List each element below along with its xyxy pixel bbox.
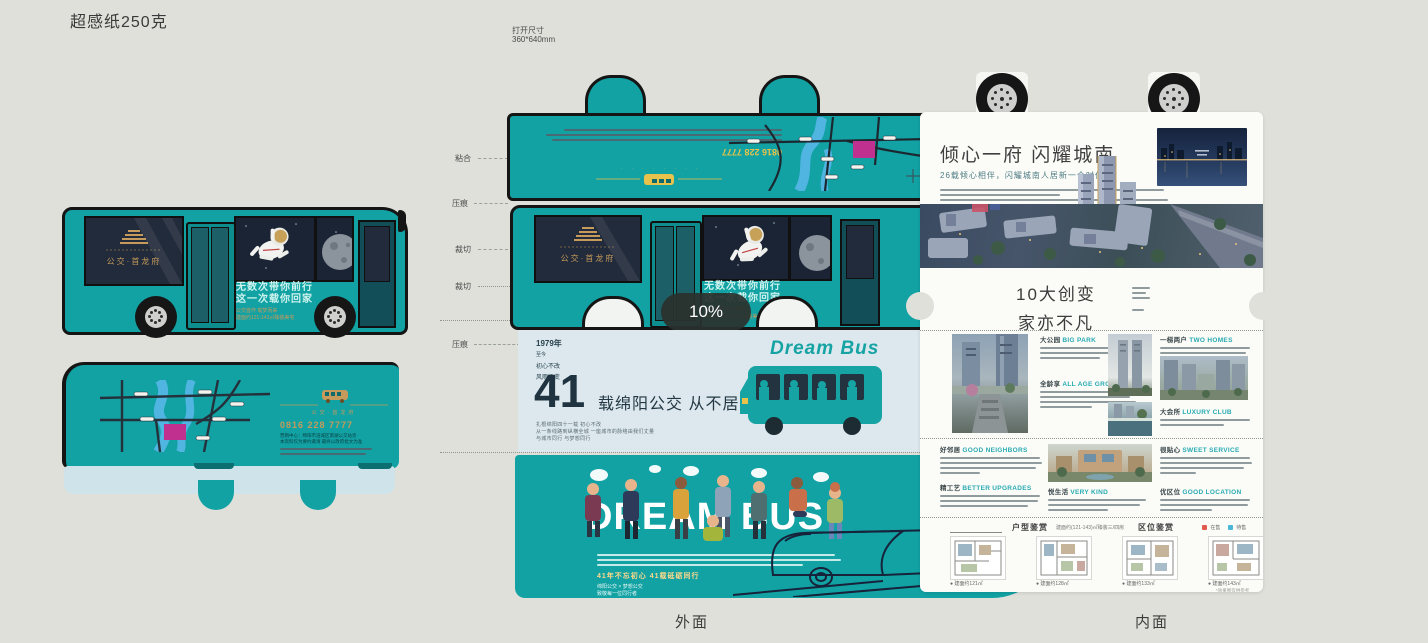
grid-item-g9: 优区位GOOD LOCATION bbox=[1160, 486, 1256, 514]
zoom-indicator-value: 10% bbox=[689, 302, 723, 322]
bus-slogan-line1: 无数次带你前行 bbox=[236, 282, 313, 294]
bus-wheel-front bbox=[314, 296, 356, 338]
bus-ad-window: 公交·首龙府 bbox=[84, 216, 184, 286]
floorplan-section: 户型鉴赏 建面约(121-143)㎡臻装三/四房 区位鉴赏 在售 待售 bbox=[920, 518, 1263, 592]
legend-label-2: 待售 bbox=[1236, 525, 1246, 531]
bus-wheel-rear bbox=[135, 296, 177, 338]
open-size-label: 打开尺寸 360*640mm bbox=[512, 26, 555, 44]
plan-legend: 在售 待售 bbox=[1202, 524, 1246, 531]
bus-astronaut-window bbox=[234, 216, 354, 282]
bus-window-logo: 公交·首龙府 bbox=[86, 256, 182, 267]
roof-contact-block: 公交·首龙府 0816 228 7777 营销中心：绵阳市涪城区南湖公交站旁 本… bbox=[280, 388, 388, 448]
dream-bus-illustration bbox=[740, 358, 890, 442]
astronaut-icon bbox=[244, 224, 295, 267]
sheet-notch-right bbox=[1249, 292, 1277, 320]
skyline-photo bbox=[1157, 128, 1247, 186]
entrance-render bbox=[952, 334, 1028, 433]
design-proof-canvas: 超感纸250克 打开尺寸 360*640mm 公交·首龙府 bbox=[0, 0, 1428, 643]
dream-bus-wordmark: Dream Bus bbox=[770, 338, 879, 360]
grid-band-2: 好邻居GOOD NEIGHBORS 精工艺BETTER UPGRADES bbox=[920, 442, 1263, 516]
sec2-side-note bbox=[1132, 284, 1162, 314]
plan-disclaimer: *效果图仅供参考 bbox=[1216, 588, 1249, 592]
bus-slogan-line2: 这一次载你回家 bbox=[236, 294, 313, 306]
moon-icon-2 bbox=[799, 235, 830, 271]
astronaut-icon-2 bbox=[720, 221, 774, 272]
outer-window-logo: 公交·首龙府 bbox=[536, 253, 640, 264]
twin-tower-render bbox=[1108, 334, 1152, 396]
moon-icon bbox=[322, 234, 352, 270]
sec2-heading: 10大创变 家亦不凡 bbox=[1016, 280, 1096, 334]
grid-item-g6: 精工艺BETTER UPGRADES bbox=[940, 482, 1046, 510]
floorplan-note: 建面约(121-143)㎡臻装三/四房 bbox=[1056, 524, 1124, 531]
outer-caption: 外面 bbox=[675, 611, 709, 632]
mark-4: 裁切 bbox=[455, 281, 471, 292]
paper-spec-label: 超感纸250克 bbox=[70, 8, 168, 32]
roof-phone: 0816 228 7777 bbox=[280, 420, 388, 430]
inner-caption: 内面 bbox=[1135, 611, 1169, 632]
floorplan-4 bbox=[1208, 536, 1263, 580]
plan-caption-2: ● 建面约128㎡ bbox=[1036, 580, 1069, 587]
mark-2-leader bbox=[474, 203, 508, 204]
plan-caption-1: ● 建面约121㎡ bbox=[950, 580, 983, 587]
bus-slogan: 无数次带你前行 这一次载你回家 bbox=[236, 282, 313, 306]
floorplan-header: 户型鉴赏 bbox=[1012, 522, 1048, 533]
zoom-indicator-pill[interactable]: 10% bbox=[661, 293, 751, 331]
roof-bump-left bbox=[198, 480, 234, 510]
legend-dot-red bbox=[1202, 525, 1207, 530]
aerial-render bbox=[920, 204, 1263, 268]
open-size-title: 打开尺寸 bbox=[512, 26, 555, 35]
floorplan-3 bbox=[1122, 536, 1178, 580]
grid-item-g5: 好邻居GOOD NEIGHBORS bbox=[940, 444, 1046, 477]
grid-item-g4: 大会所LUXURY CLUB bbox=[1160, 406, 1256, 429]
open-size-value: 360*640mm bbox=[512, 35, 555, 44]
roof-notch-left bbox=[194, 463, 234, 469]
roof-brand: 公交·首龙府 bbox=[280, 409, 388, 416]
grid-item-g7: 悦生活VERY KIND bbox=[1048, 486, 1152, 514]
community-render bbox=[1160, 356, 1248, 400]
floorplan-1 bbox=[950, 536, 1006, 580]
mark-4-leader bbox=[478, 286, 510, 287]
plan-rule bbox=[950, 532, 1002, 533]
waterscape-render bbox=[1108, 402, 1152, 436]
roof-notch-right bbox=[358, 463, 392, 469]
mark-2: 压痕 bbox=[452, 198, 468, 209]
bus-side-mockup: 公交·首龙府 bbox=[62, 200, 408, 360]
bus-mirror bbox=[398, 210, 406, 232]
grid-band-1: 大公园BIG PARK 全龄享ALL AGE GROUPS 一梯 bbox=[920, 330, 1263, 438]
roof-notes: 营销中心：绵阳市涪城区南湖公交站旁 本资料仅为要约邀请 最终以政府批文为准 bbox=[280, 433, 388, 455]
gold-emblem-icon bbox=[86, 218, 182, 284]
grid-item-g3: 一梯两户TWO HOMES bbox=[1160, 334, 1256, 357]
roof-bump-right bbox=[300, 480, 336, 510]
mark-3-leader bbox=[478, 249, 508, 250]
inner-sheet: 倾心一府 闪耀城南 [data-name="inner-headline"]{f… bbox=[920, 112, 1263, 592]
outer-astronaut-window bbox=[702, 215, 832, 281]
outer-ad-window: 公交·首龙府 bbox=[534, 215, 642, 283]
bus-front-door bbox=[358, 220, 396, 328]
stats-big-number: 41 bbox=[534, 368, 585, 414]
bus-gold-lines: 公交首作 载梦而来 建面约121-143㎡臻装美宅 bbox=[236, 308, 294, 322]
legend-dot-blue bbox=[1228, 525, 1233, 530]
flap-map bbox=[729, 117, 929, 191]
location-header: 区位鉴赏 bbox=[1138, 522, 1174, 533]
outer-front-door bbox=[840, 219, 880, 326]
sec2-line1: 10大创变 bbox=[1016, 280, 1096, 305]
location-map bbox=[100, 380, 270, 452]
mark-5: 压痕 bbox=[452, 339, 468, 350]
mark-1: 粘合 bbox=[455, 153, 471, 164]
grid-item-g8: 很贴心SWEET SERVICE bbox=[1160, 444, 1256, 477]
villa-render bbox=[1048, 444, 1152, 482]
mark-5-leader bbox=[474, 344, 520, 345]
legend-label-1: 在售 bbox=[1210, 525, 1220, 531]
mark-3: 裁切 bbox=[455, 244, 471, 255]
gold-bus-logo-icon bbox=[280, 388, 388, 408]
mark-1-leader bbox=[478, 158, 508, 159]
bus-roof-mockup: 公交·首龙府 0816 228 7777 营销中心：绵阳市涪城区南湖公交站旁 本… bbox=[62, 362, 395, 512]
bus-middle-door bbox=[186, 222, 236, 330]
plan-caption-4: ● 建面约143㎡ bbox=[1208, 580, 1241, 587]
sheet-notch-left bbox=[906, 292, 934, 320]
plan-caption-3: ● 建面约133㎡ bbox=[1122, 580, 1155, 587]
floorplan-2 bbox=[1036, 536, 1092, 580]
inner-fold-guide-2 bbox=[920, 438, 1263, 439]
